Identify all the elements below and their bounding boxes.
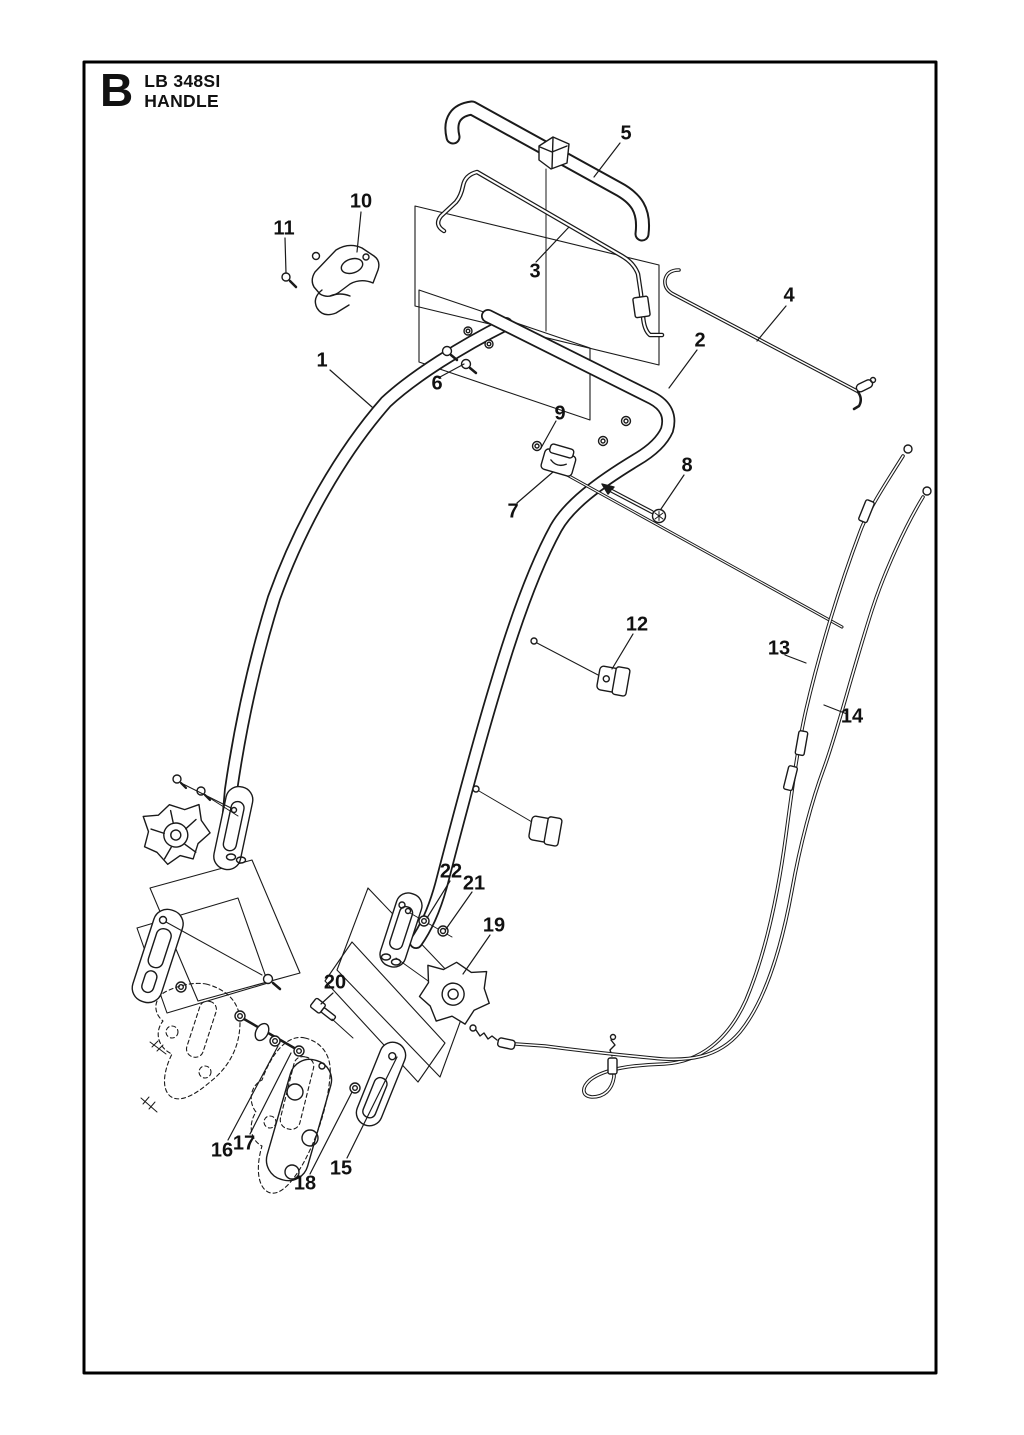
title-block: B LB 348SI HANDLE bbox=[100, 68, 221, 112]
page-border bbox=[84, 62, 936, 1373]
part-label-11: 11 bbox=[273, 218, 294, 241]
lower-bracket-group bbox=[129, 906, 410, 1194]
control-cables bbox=[470, 445, 931, 1097]
section-title: HANDLE bbox=[144, 91, 220, 111]
clamp-7 bbox=[540, 442, 578, 477]
part-label-3: 3 bbox=[529, 261, 540, 284]
bolt-16-17-assembly bbox=[235, 1011, 304, 1056]
bracket-plate-holes bbox=[262, 1055, 337, 1186]
bolt-8 bbox=[612, 491, 666, 523]
part-label-20: 20 bbox=[324, 972, 346, 995]
part-label-14: 14 bbox=[841, 706, 863, 729]
screw-11 bbox=[282, 273, 296, 287]
diagram-canvas bbox=[0, 0, 1024, 1435]
part-label-13: 13 bbox=[768, 638, 790, 661]
model-name: LB 348SI bbox=[144, 71, 220, 91]
part-label-5: 5 bbox=[620, 123, 631, 146]
part-label-7: 7 bbox=[507, 501, 518, 524]
cable-end-ring bbox=[923, 487, 931, 495]
plate-15 bbox=[352, 1038, 409, 1129]
screw bbox=[173, 775, 186, 788]
part-label-1: 1 bbox=[316, 350, 327, 373]
parts-diagram-page: B LB 348SI HANDLE 1 2 3 4 5 6 7 8 9 10 1… bbox=[0, 0, 1024, 1435]
leader-lines bbox=[228, 143, 847, 1174]
part-label-18: 18 bbox=[294, 1173, 316, 1196]
cable-13 bbox=[584, 445, 912, 1097]
part-label-10: 10 bbox=[350, 191, 372, 214]
part-label-4: 4 bbox=[783, 285, 794, 308]
part-label-19: 19 bbox=[483, 915, 505, 938]
part-label-21: 21 bbox=[463, 873, 485, 896]
screw bbox=[197, 787, 210, 800]
handle-bar-upper bbox=[452, 108, 643, 331]
cable-guide-rod bbox=[560, 471, 842, 627]
part-label-12: 12 bbox=[626, 614, 648, 637]
part-label-22: 22 bbox=[440, 861, 462, 884]
part-label-9: 9 bbox=[554, 403, 565, 426]
part-label-8: 8 bbox=[681, 455, 692, 478]
part-label-16: 16 bbox=[211, 1140, 233, 1163]
part-label-17: 17 bbox=[233, 1133, 255, 1156]
knob-19 bbox=[416, 958, 494, 1028]
part-label-15: 15 bbox=[330, 1158, 352, 1181]
bolt-6b bbox=[462, 360, 477, 374]
screw bbox=[264, 975, 281, 990]
nut-18 bbox=[350, 1083, 360, 1093]
throttle-control-assembly bbox=[282, 245, 379, 314]
cable-spring bbox=[476, 1030, 497, 1040]
section-letter: B bbox=[100, 68, 134, 112]
part-label-6: 6 bbox=[431, 373, 442, 396]
upper-handle-tube bbox=[377, 316, 668, 970]
part-label-2: 2 bbox=[694, 330, 705, 353]
cable-end-ring bbox=[904, 445, 912, 453]
